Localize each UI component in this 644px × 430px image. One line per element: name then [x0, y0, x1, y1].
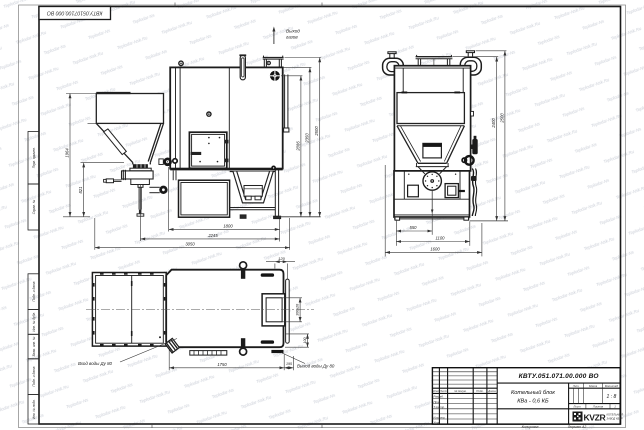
svg-text:Т.контр.: Т.контр. — [434, 405, 446, 409]
svg-text:Масса: Масса — [589, 384, 598, 388]
svg-text:Листов: Листов — [592, 405, 604, 409]
svg-text:3050: 3050 — [185, 242, 195, 247]
svg-text:Копировал: Копировал — [522, 425, 539, 429]
svg-text:Н.контр.: Н.контр. — [434, 415, 446, 419]
svg-text:2400: 2400 — [491, 118, 496, 129]
svg-text:Вход воды Ду 80: Вход воды Ду 80 — [78, 361, 113, 366]
svg-text:1100: 1100 — [435, 236, 445, 241]
svg-text:Подп. и дата: Подп. и дата — [32, 281, 36, 301]
svg-text:КВа - 0,6 КБ: КВа - 0,6 КБ — [517, 398, 549, 404]
svg-text:100: 100 — [303, 338, 307, 344]
svg-text:Лит.: Лит. — [572, 384, 580, 388]
svg-text:2086: 2086 — [295, 141, 300, 152]
svg-text:Формат А2: Формат А2 — [568, 425, 587, 429]
svg-text:№ докум.: № докум. — [454, 389, 467, 393]
svg-text:Подп. и дата: Подп. и дата — [32, 366, 36, 386]
svg-text:Подп.: Подп. — [476, 389, 484, 393]
svg-text:KVZR: KVZR — [584, 413, 607, 423]
svg-text:Дата: Дата — [487, 389, 496, 393]
svg-text:Лист: Лист — [439, 389, 448, 393]
svg-text:1964: 1964 — [64, 148, 69, 158]
svg-text:Выход воды Ду 80: Выход воды Ду 80 — [297, 363, 335, 368]
svg-text:газов: газов — [286, 34, 298, 39]
svg-text:Перв. примен.: Перв. примен. — [32, 147, 36, 168]
svg-text:1 : 8: 1 : 8 — [607, 394, 617, 400]
svg-text:Котельный блок: Котельный блок — [511, 389, 555, 396]
svg-text:550: 550 — [410, 225, 418, 230]
svg-text:Справ. №: Справ. № — [32, 199, 36, 214]
svg-text:1750: 1750 — [217, 362, 227, 367]
svg-text:821: 821 — [78, 187, 83, 194]
svg-text:КВТУ.05107100.000 ВО: КВТУ.05107100.000 ВО — [47, 9, 103, 15]
svg-text:Лист: Лист — [572, 405, 581, 409]
svg-text:Инв. № подл.: Инв. № подл. — [32, 399, 36, 419]
svg-text:Взам. инв. №: Взам. инв. № — [32, 336, 36, 356]
svg-text:1800: 1800 — [223, 223, 233, 228]
svg-text:КВТУ.051.071.00.000 ВО: КВТУ.051.071.00.000 ВО — [519, 373, 600, 380]
svg-text:Пров.: Пров. — [434, 400, 442, 404]
svg-text:Разраб.: Разраб. — [434, 395, 444, 399]
svg-text:КОТЕЛЬНЫЙ: КОТЕЛЬНЫЙ — [607, 413, 623, 417]
svg-text:2350: 2350 — [304, 133, 309, 144]
svg-text:ЗАВОД КВЗР: ЗАВОД КВЗР — [607, 417, 623, 421]
svg-text:Утв.: Утв. — [434, 420, 441, 424]
svg-text:Инв. № дубл.: Инв. № дубл. — [32, 312, 36, 332]
svg-text:Изм: Изм — [433, 389, 438, 393]
svg-text:195: 195 — [286, 362, 292, 366]
svg-text:2245: 2245 — [207, 233, 218, 238]
svg-text:2500: 2500 — [499, 113, 504, 124]
svg-text:Масштаб: Масштаб — [605, 384, 618, 388]
svg-text:2500: 2500 — [314, 126, 319, 137]
svg-text:Выход: Выход — [286, 29, 300, 34]
svg-text:120: 120 — [278, 256, 285, 261]
svg-text:300±20: 300±20 — [296, 304, 300, 316]
svg-text:1600: 1600 — [430, 246, 440, 251]
